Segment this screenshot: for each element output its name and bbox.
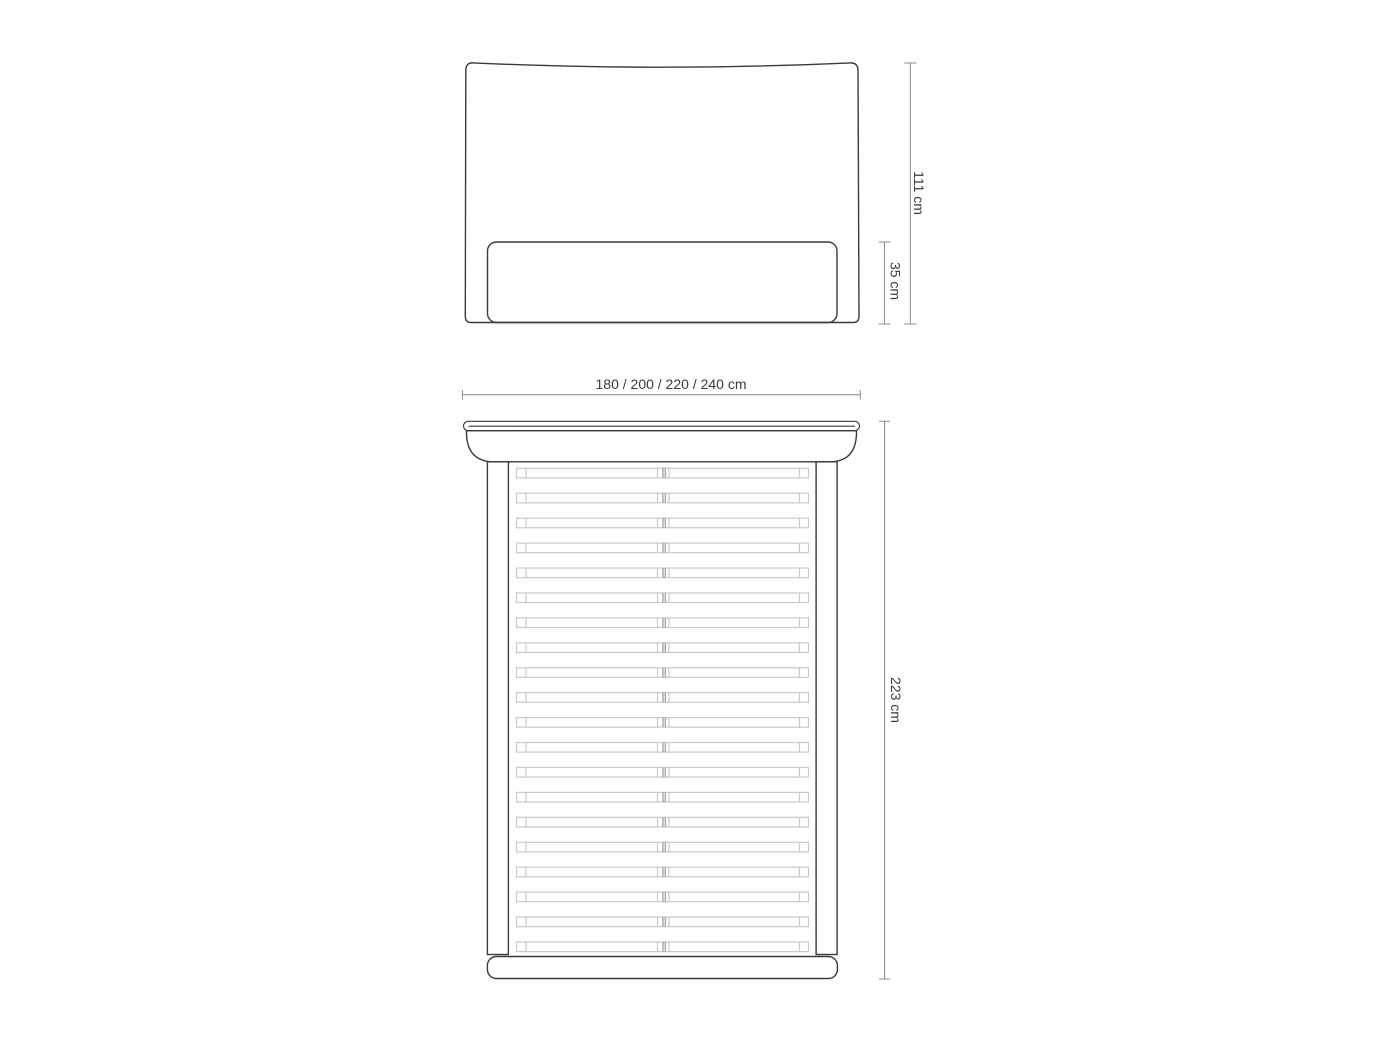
slat-row (517, 892, 809, 902)
side-rail-left (487, 462, 508, 955)
slat-row (517, 817, 809, 827)
slat-row (517, 917, 809, 927)
slat-row (517, 593, 809, 603)
top-view: 180 / 200 / 220 / 240 cm 223 cm (463, 376, 905, 979)
dimension-width-label: 180 / 200 / 220 / 240 cm (596, 376, 747, 392)
bed-dimensions-diagram: 111 cm 35 cm 180 / 200 / 220 / 240 cm (0, 0, 1394, 1045)
slat-row (517, 942, 809, 952)
dimension-height-label: 111 cm (911, 171, 927, 215)
dimension-base-height-label: 35 cm (888, 262, 904, 300)
slat-row (517, 693, 809, 703)
dimension-width: 180 / 200 / 220 / 240 cm (463, 376, 861, 400)
slat-row (517, 842, 809, 852)
bed-base-front-outline (488, 242, 838, 323)
slat-row (517, 718, 809, 728)
footboard-top (487, 957, 837, 979)
slat-row (517, 493, 809, 503)
slat-row (517, 767, 809, 777)
side-rail-right (816, 462, 837, 955)
dimension-base-height: 35 cm (879, 242, 904, 324)
slat-row (517, 668, 809, 678)
slat-row (517, 792, 809, 802)
headboard-front-outline (465, 63, 859, 323)
slat-row (517, 568, 809, 578)
headboard-top-body (467, 431, 857, 462)
slat-row (517, 743, 809, 753)
dimension-height: 111 cm (904, 63, 927, 324)
slat-row (517, 543, 809, 553)
diagram-svg: 111 cm 35 cm 180 / 200 / 220 / 240 cm (0, 0, 1394, 1045)
slat-row (517, 867, 809, 877)
slat-row (517, 618, 809, 628)
slat-row (517, 518, 809, 528)
dimension-length: 223 cm (879, 421, 904, 979)
front-view: 111 cm 35 cm (465, 63, 927, 324)
slat-row (517, 643, 809, 653)
slats-group (517, 468, 809, 951)
slat-row (517, 468, 809, 478)
dimension-length-label: 223 cm (888, 677, 904, 723)
